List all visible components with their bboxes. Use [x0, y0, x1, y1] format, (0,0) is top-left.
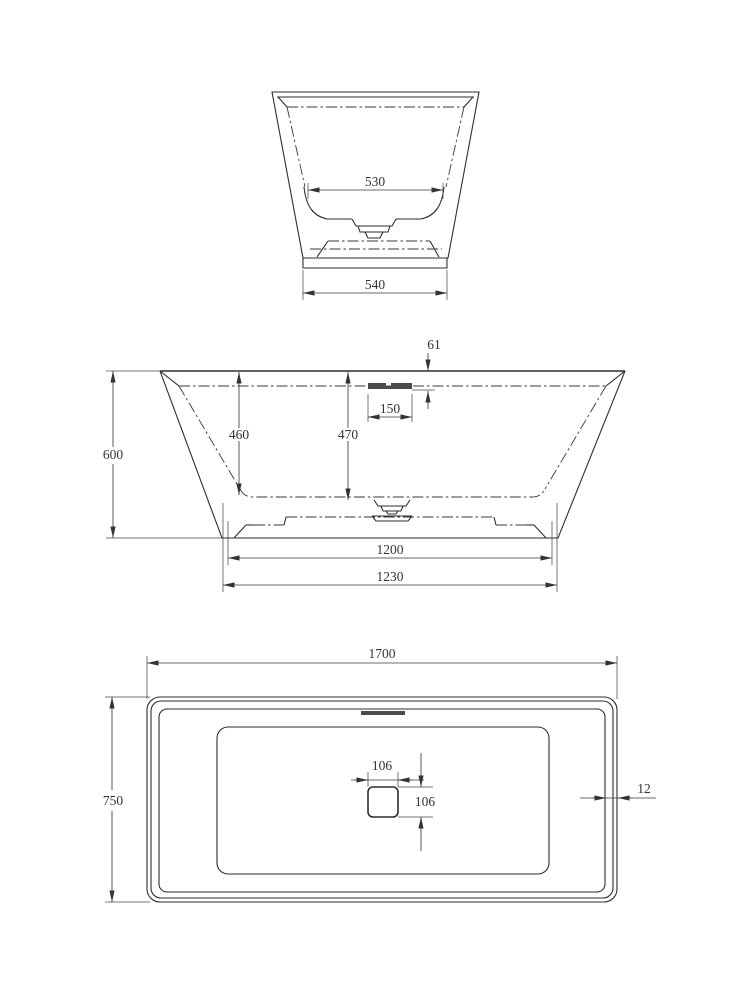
bathtub-technical-drawing: 530 540: [0, 0, 750, 1000]
end-view: 530 540: [272, 92, 479, 300]
basin-edge: [217, 727, 549, 874]
dim-rim-thickness: 12: [580, 781, 656, 798]
dim-106-depth-label: 106: [415, 794, 436, 809]
dim-overall-width: 750: [103, 697, 150, 902]
dim-470-label: 470: [338, 427, 359, 442]
drain-detail-front-view: [372, 500, 412, 521]
dim-600-label: 600: [103, 447, 124, 462]
dim-540-label: 540: [365, 277, 386, 292]
dim-drain-depth: 106: [398, 753, 435, 851]
dim-inner-depth-centre: 470: [338, 372, 359, 500]
dim-106-width-label: 106: [372, 758, 393, 773]
dim-overall-length: 1700: [147, 646, 617, 699]
dim-rim-to-overflow: 61: [427, 337, 441, 409]
dim-inner-depth-side: 460: [229, 372, 250, 495]
dim-inner-bottom-width: 530: [308, 174, 443, 199]
plan-view: 1700 750 106 106: [103, 646, 656, 902]
dim-base-width: 540: [303, 270, 447, 300]
dim-460-label: 460: [229, 427, 250, 442]
drain-detail-end-view: [352, 219, 396, 238]
dim-61-label: 61: [427, 337, 441, 352]
base-strip: [303, 258, 447, 268]
rim-inner-edge: [159, 709, 605, 892]
dim-1230-label: 1230: [377, 569, 404, 584]
dim-base-inner-length: 1200: [228, 521, 552, 565]
dim-drain-width: 106: [351, 758, 424, 787]
dim-1700-label: 1700: [369, 646, 396, 661]
dim-1200-label: 1200: [377, 542, 404, 557]
drain-square: [368, 787, 398, 817]
drawing-sheet: 530 540: [0, 0, 750, 1000]
dim-750-label: 750: [103, 793, 124, 808]
dim-12-label: 12: [637, 781, 651, 796]
dim-530-label: 530: [365, 174, 386, 189]
overflow-slot: [361, 711, 405, 715]
dim-overflow-width: 150: [368, 394, 412, 422]
front-view: 600 460 470 61 150: [103, 337, 625, 592]
plan-view-geometry: [147, 697, 617, 902]
dim-overall-height: 600: [103, 371, 222, 538]
front-view-geometry: [160, 371, 625, 538]
dim-150-label: 150: [380, 401, 401, 416]
tub-shell-outline: [160, 371, 625, 538]
